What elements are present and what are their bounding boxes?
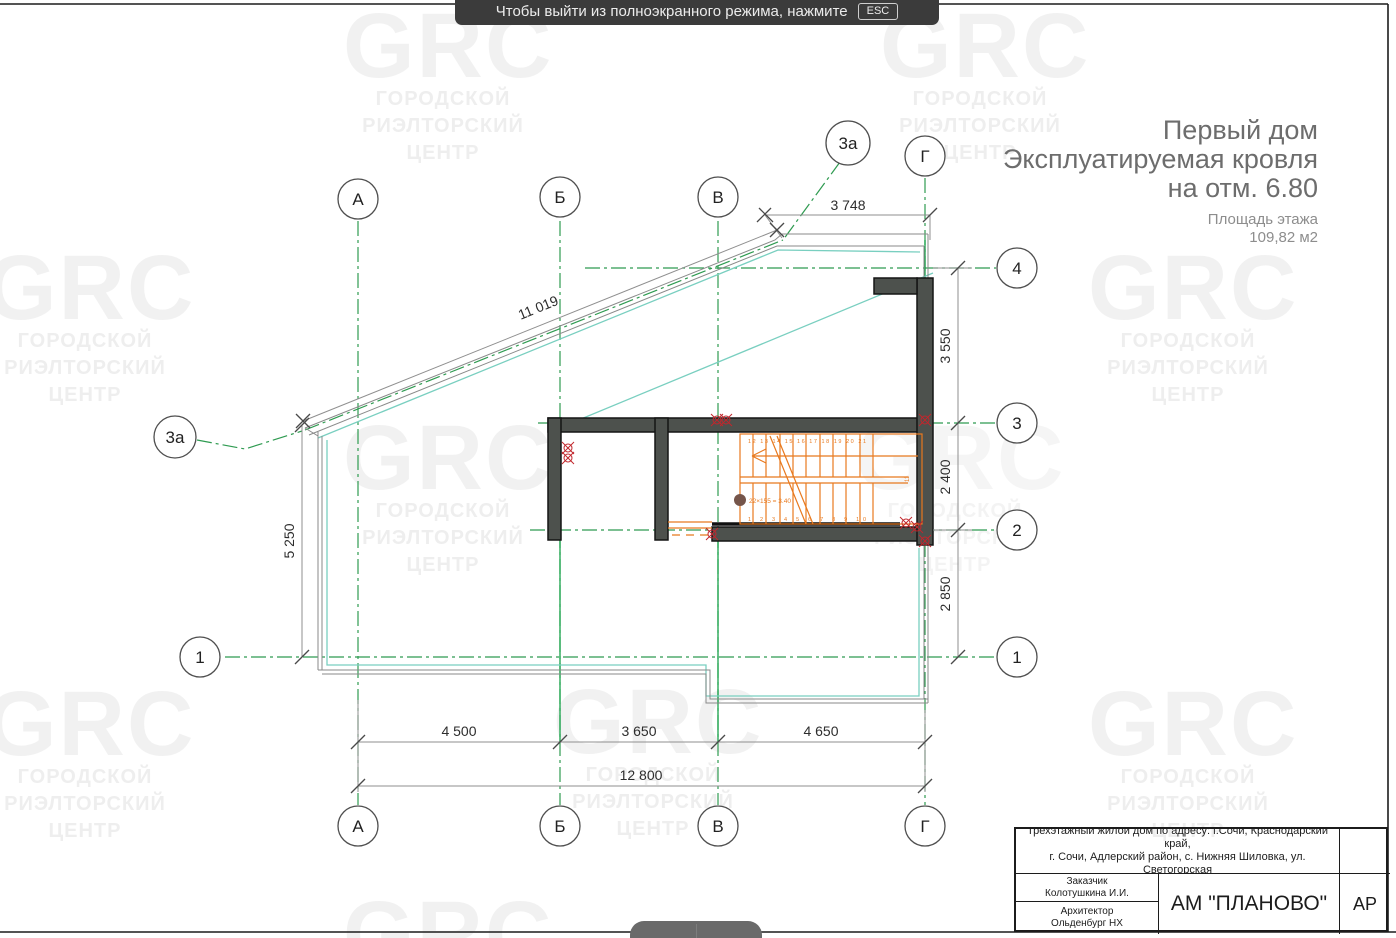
customer-cell: Заказчик Колотушкина И.И. <box>1016 874 1159 902</box>
area-value: 109,82 м2 <box>1003 229 1318 247</box>
svg-text:А: А <box>352 190 364 209</box>
axis-grid-solid <box>560 240 925 742</box>
svg-text:2: 2 <box>1012 521 1021 540</box>
svg-text:5 250: 5 250 <box>281 523 297 558</box>
firm-name: АМ "ПЛАНОВО" <box>1159 874 1340 934</box>
architect-cell: Архитектор Ольденбург НХ <box>1016 902 1159 934</box>
svg-text:2 400: 2 400 <box>937 459 953 494</box>
svg-text:12 13 14 15 16 17 18 19 20 21: 12 13 14 15 16 17 18 19 20 21 <box>748 439 866 445</box>
title-block-empty-cell <box>1340 829 1390 874</box>
project-address: Трехэтажный жилой дом по адресу: г.Сочи,… <box>1016 829 1340 874</box>
svg-text:3 650: 3 650 <box>621 723 656 739</box>
svg-text:3а: 3а <box>166 428 185 447</box>
area-label: Площадь этажа <box>1003 211 1318 229</box>
title-line-1: Первый дом <box>1003 116 1318 145</box>
svg-text:3 748: 3 748 <box>830 197 865 213</box>
staircase <box>668 434 922 535</box>
svg-text:3: 3 <box>1012 414 1021 433</box>
svg-text:3а: 3а <box>839 134 858 153</box>
fullscreen-exit-toast: Чтобы выйти из полноэкранного режима, на… <box>455 0 939 25</box>
toast-message: Чтобы выйти из полноэкранного режима, на… <box>496 3 848 20</box>
axis-bubble-labels: А Б В Г 3а 4 3 2 1 3а 1 А Б В Г <box>166 134 1022 836</box>
roof-edge-lines <box>305 234 928 703</box>
svg-text:Б: Б <box>554 817 565 836</box>
svg-text:Г: Г <box>920 817 929 836</box>
stair-note-leader-dot <box>734 494 746 506</box>
drawing-title: Первый дом Эксплуатируемая кровля на отм… <box>1003 116 1318 247</box>
title-line-3: на отм. 6.80 <box>1003 174 1318 203</box>
svg-text:22×155 = 3.40: 22×155 = 3.40 <box>749 498 791 505</box>
sheet-code: АР <box>1340 874 1390 934</box>
svg-text:4 650: 4 650 <box>803 723 838 739</box>
title-line-2: Эксплуатируемая кровля <box>1003 145 1318 174</box>
dimension-text: 3 748 11 019 3 550 2 400 2 850 5 250 4 5… <box>281 197 953 783</box>
svg-text:11 019: 11 019 <box>516 292 561 323</box>
roof-teal-outline <box>318 250 933 696</box>
fullscreen-drawing-viewer: GRC ГОРОДСКОЙРИЭЛТОРСКИЙЦЕНТР GRC ГОРОДС… <box>0 0 1396 938</box>
svg-text:Б: Б <box>554 188 565 207</box>
svg-text:1: 1 <box>1012 648 1021 667</box>
esc-key-hint: ESC <box>858 3 899 20</box>
svg-text:11: 11 <box>905 475 911 482</box>
svg-text:Г: Г <box>920 147 929 166</box>
dimension-ticks <box>295 208 965 793</box>
dimension-lines <box>302 215 972 792</box>
svg-text:2 850: 2 850 <box>937 576 953 611</box>
svg-text:В: В <box>712 188 723 207</box>
svg-text:4 500: 4 500 <box>441 723 476 739</box>
svg-text:12 800: 12 800 <box>620 767 663 783</box>
svg-text:1: 1 <box>195 648 204 667</box>
svg-text:4: 4 <box>1012 259 1021 278</box>
stair-labels: 12 13 14 15 16 17 18 19 20 21 1 2 3 4 5 … <box>748 439 911 523</box>
svg-text:В: В <box>712 817 723 836</box>
svg-text:А: А <box>352 817 364 836</box>
bottom-drag-handle[interactable] <box>630 921 762 938</box>
title-block: Трехэтажный жилой дом по адресу: г.Сочи,… <box>1014 827 1388 932</box>
svg-text:3 550: 3 550 <box>937 328 953 363</box>
